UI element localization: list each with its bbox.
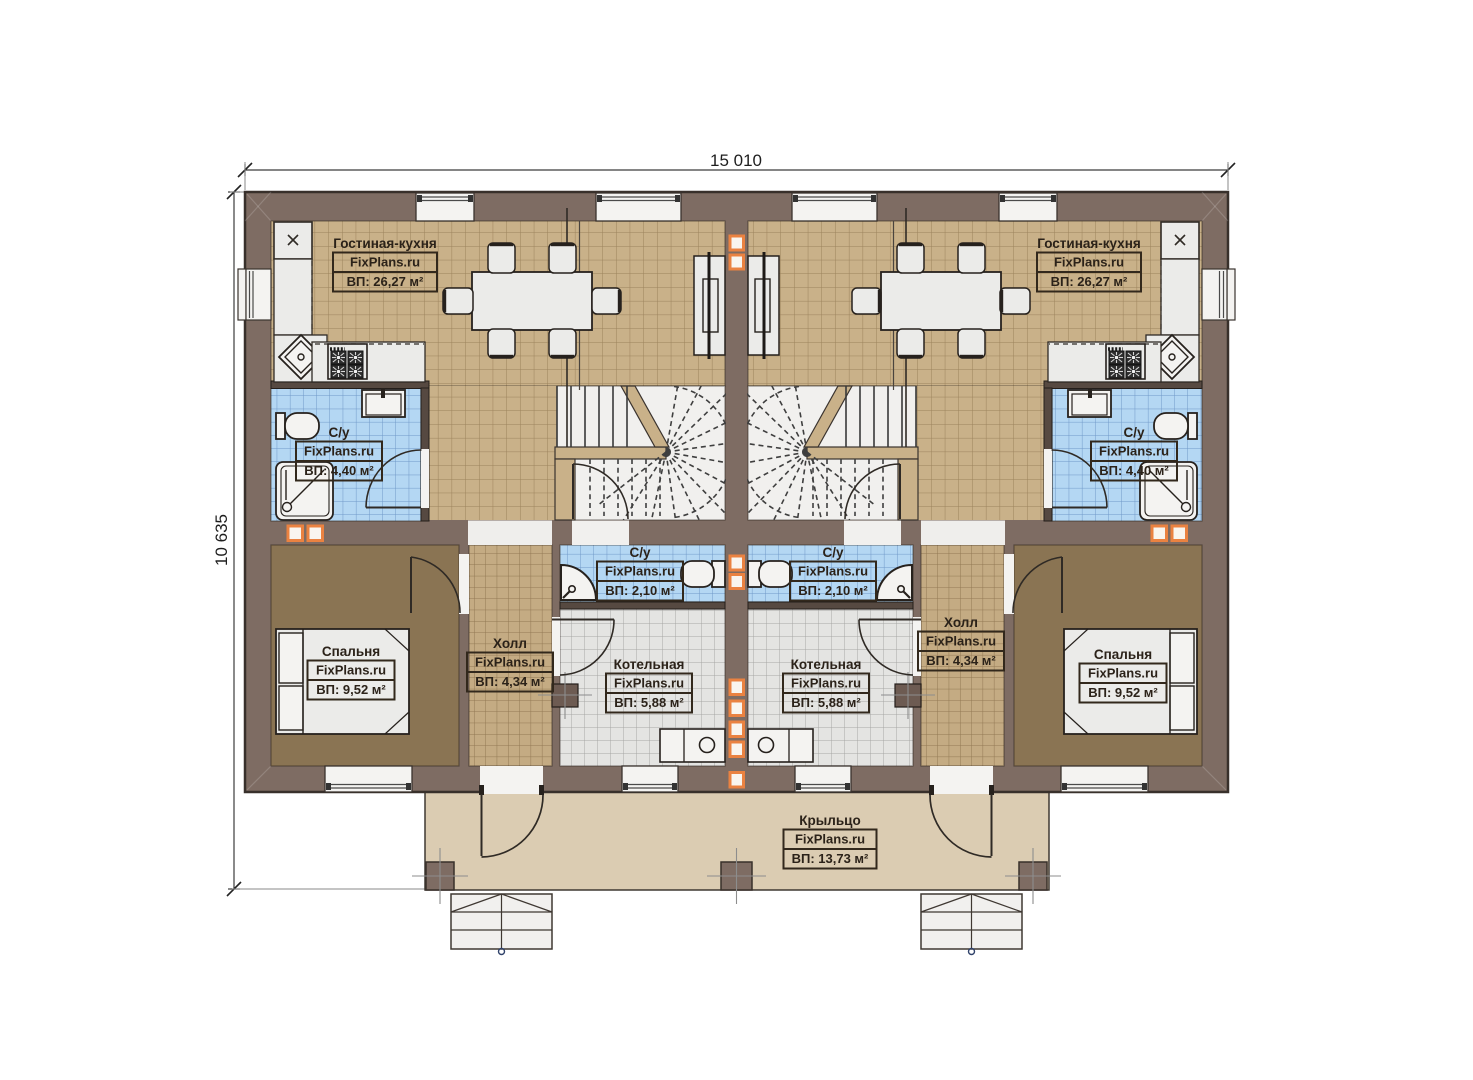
svg-text:Холл: Холл <box>493 636 527 651</box>
svg-text:FixPlans.ru: FixPlans.ru <box>1054 255 1124 270</box>
svg-text:Спальня: Спальня <box>322 644 380 659</box>
svg-text:С/у: С/у <box>822 545 844 560</box>
svg-text:Холл: Холл <box>944 615 978 630</box>
svg-text:С/у: С/у <box>328 425 350 440</box>
svg-text:С/у: С/у <box>1123 425 1145 440</box>
svg-text:Котельная: Котельная <box>614 657 685 672</box>
svg-text:Крыльцо: Крыльцо <box>799 813 860 828</box>
svg-text:FixPlans.ru: FixPlans.ru <box>316 663 386 678</box>
svg-text:ВП: 13,73 м²: ВП: 13,73 м² <box>792 851 869 866</box>
svg-text:ВП: 4,40 м²: ВП: 4,40 м² <box>304 463 374 478</box>
svg-text:15 010: 15 010 <box>710 151 762 170</box>
svg-text:ВП: 5,88 м²: ВП: 5,88 м² <box>791 695 861 710</box>
svg-text:ВП: 2,10 м²: ВП: 2,10 м² <box>798 583 868 598</box>
svg-text:FixPlans.ru: FixPlans.ru <box>614 676 684 691</box>
svg-text:ВП: 9,52 м²: ВП: 9,52 м² <box>1088 685 1158 700</box>
svg-text:ВП: 2,10 м²: ВП: 2,10 м² <box>605 583 675 598</box>
svg-text:ВП: 4,40 м²: ВП: 4,40 м² <box>1099 463 1169 478</box>
svg-text:FixPlans.ru: FixPlans.ru <box>798 564 868 579</box>
svg-text:ВП: 9,52 м²: ВП: 9,52 м² <box>316 682 386 697</box>
svg-text:FixPlans.ru: FixPlans.ru <box>791 676 861 691</box>
svg-text:ВП: 26,27 м²: ВП: 26,27 м² <box>347 274 424 289</box>
svg-text:FixPlans.ru: FixPlans.ru <box>926 634 996 649</box>
svg-text:С/у: С/у <box>629 545 651 560</box>
svg-text:FixPlans.ru: FixPlans.ru <box>605 564 675 579</box>
svg-text:Котельная: Котельная <box>791 657 862 672</box>
svg-text:ВП: 5,88 м²: ВП: 5,88 м² <box>614 695 684 710</box>
svg-text:FixPlans.ru: FixPlans.ru <box>1099 444 1169 459</box>
svg-text:ВП: 4,34 м²: ВП: 4,34 м² <box>926 653 996 668</box>
svg-text:Гостиная-кухня: Гостиная-кухня <box>1037 236 1140 251</box>
svg-text:FixPlans.ru: FixPlans.ru <box>350 255 420 270</box>
svg-text:FixPlans.ru: FixPlans.ru <box>795 832 865 847</box>
svg-text:ВП: 26,27 м²: ВП: 26,27 м² <box>1051 274 1128 289</box>
svg-text:ВП: 4,34 м²: ВП: 4,34 м² <box>475 674 545 689</box>
svg-text:FixPlans.ru: FixPlans.ru <box>304 444 374 459</box>
svg-text:FixPlans.ru: FixPlans.ru <box>1088 666 1158 681</box>
svg-text:Спальня: Спальня <box>1094 647 1152 662</box>
svg-text:10 635: 10 635 <box>212 514 231 566</box>
svg-text:FixPlans.ru: FixPlans.ru <box>475 655 545 670</box>
svg-text:Гостиная-кухня: Гостиная-кухня <box>333 236 436 251</box>
